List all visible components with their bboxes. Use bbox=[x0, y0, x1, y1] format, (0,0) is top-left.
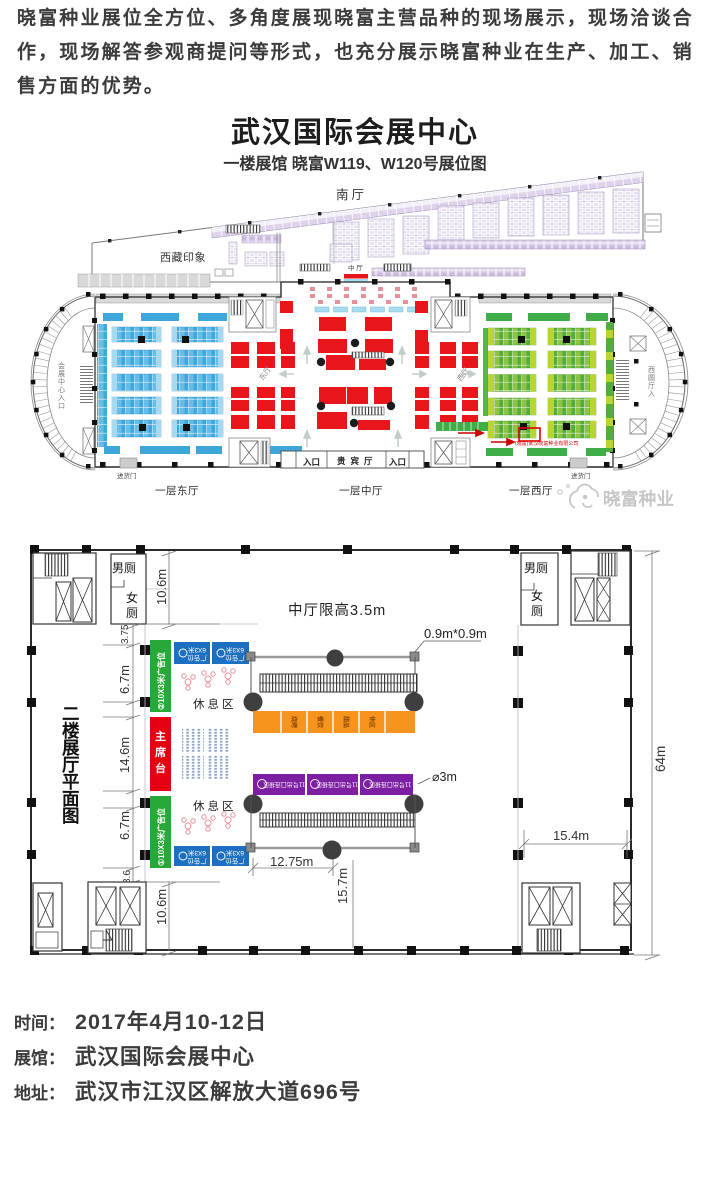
svg-text:心: 心 bbox=[58, 386, 65, 394]
svg-text:女: 女 bbox=[531, 588, 543, 603]
svg-text:展: 展 bbox=[58, 370, 65, 378]
svg-text:11号出口连接区: 11号出口连接区 bbox=[316, 781, 358, 789]
svg-text:14.6m: 14.6m bbox=[117, 737, 132, 773]
svg-text:②10X3米广告位: ②10X3米广告位 bbox=[156, 652, 166, 710]
svg-text:休区: 休区 bbox=[368, 715, 376, 728]
svg-text:男厕: 男厕 bbox=[112, 561, 136, 575]
svg-text:广告位: 广告位 bbox=[187, 857, 207, 866]
svg-text:中: 中 bbox=[58, 377, 65, 386]
svg-text:广告位: 广告位 bbox=[187, 654, 207, 663]
svg-text:6X3米: 6X3米 bbox=[225, 646, 244, 655]
svg-text:6.7m: 6.7m bbox=[117, 811, 132, 840]
svg-text:中 厅: 中 厅 bbox=[348, 263, 363, 272]
svg-text:6X3米: 6X3米 bbox=[187, 849, 206, 858]
svg-text:厕: 厕 bbox=[531, 604, 543, 618]
svg-text:0.9m*0.9m: 0.9m*0.9m bbox=[424, 626, 487, 641]
svg-text:6X3米: 6X3米 bbox=[225, 849, 244, 858]
svg-text:西藏印象: 西藏印象 bbox=[160, 251, 206, 264]
svg-text:广告位: 广告位 bbox=[225, 654, 245, 663]
svg-text:进货门: 进货门 bbox=[117, 471, 137, 480]
svg-text:12.75m: 12.75m bbox=[270, 854, 313, 869]
svg-text:6.7m: 6.7m bbox=[117, 665, 132, 694]
svg-text:中厅限高3.5m: 中厅限高3.5m bbox=[288, 602, 386, 619]
svg-text:台: 台 bbox=[155, 761, 166, 775]
svg-text:南厅: 南厅 bbox=[336, 187, 367, 202]
svg-text:图: 图 bbox=[62, 806, 80, 826]
svg-text:一层西厅: 一层西厅 bbox=[509, 485, 553, 497]
svg-text:主: 主 bbox=[155, 729, 166, 743]
svg-text:晓富种业: 晓富种业 bbox=[603, 489, 674, 509]
svg-text:休息区: 休息区 bbox=[193, 799, 237, 813]
svg-text:甜品: 甜品 bbox=[342, 716, 350, 728]
svg-text:入: 入 bbox=[58, 394, 65, 402]
svg-text:6X3米: 6X3米 bbox=[187, 646, 206, 655]
svg-text:男厕: 男厕 bbox=[524, 561, 548, 575]
svg-text:口: 口 bbox=[58, 402, 65, 410]
svg-text:入口: 入口 bbox=[388, 457, 406, 467]
svg-text:11号出口连接区: 11号出口连接区 bbox=[369, 781, 411, 789]
svg-text:一层东厅: 一层东厅 bbox=[155, 484, 199, 497]
svg-text:①10X3米广告位: ①10X3米广告位 bbox=[156, 808, 166, 866]
svg-text:进货门: 进货门 bbox=[571, 471, 591, 480]
svg-text:(晓富)武汉晓富种业有限公司: (晓富)武汉晓富种业有限公司 bbox=[515, 440, 578, 447]
svg-text:11号出口连接区: 11号出口连接区 bbox=[263, 781, 305, 789]
svg-text:贵宾厅: 贵宾厅 bbox=[337, 456, 378, 466]
svg-text:15.4m: 15.4m bbox=[553, 828, 589, 843]
svg-text:厕: 厕 bbox=[126, 606, 138, 620]
svg-text:入口: 入口 bbox=[302, 457, 320, 467]
svg-text:3.75: 3.75 bbox=[120, 624, 131, 644]
svg-text:会: 会 bbox=[58, 361, 65, 370]
svg-text:10.6m: 10.6m bbox=[154, 889, 169, 925]
svg-text:15.7m: 15.7m bbox=[335, 868, 350, 904]
svg-text:一层中厅: 一层中厅 bbox=[339, 484, 383, 497]
svg-text:厅: 厅 bbox=[648, 382, 655, 390]
svg-text:入: 入 bbox=[648, 390, 655, 398]
svg-text:休息区: 休息区 bbox=[193, 697, 237, 711]
svg-text:64m: 64m bbox=[653, 746, 668, 772]
svg-text:烧烤: 烧烤 bbox=[290, 716, 298, 728]
svg-text:女: 女 bbox=[126, 590, 138, 605]
svg-text:西: 西 bbox=[648, 366, 655, 374]
svg-text:广告位: 广告位 bbox=[225, 857, 245, 866]
svg-text:圆: 圆 bbox=[648, 374, 655, 382]
svg-text:餐饮: 餐饮 bbox=[316, 715, 324, 729]
svg-text:⌀3m: ⌀3m bbox=[432, 770, 457, 784]
svg-text:10.6m: 10.6m bbox=[154, 569, 169, 605]
svg-text:席: 席 bbox=[155, 745, 166, 759]
